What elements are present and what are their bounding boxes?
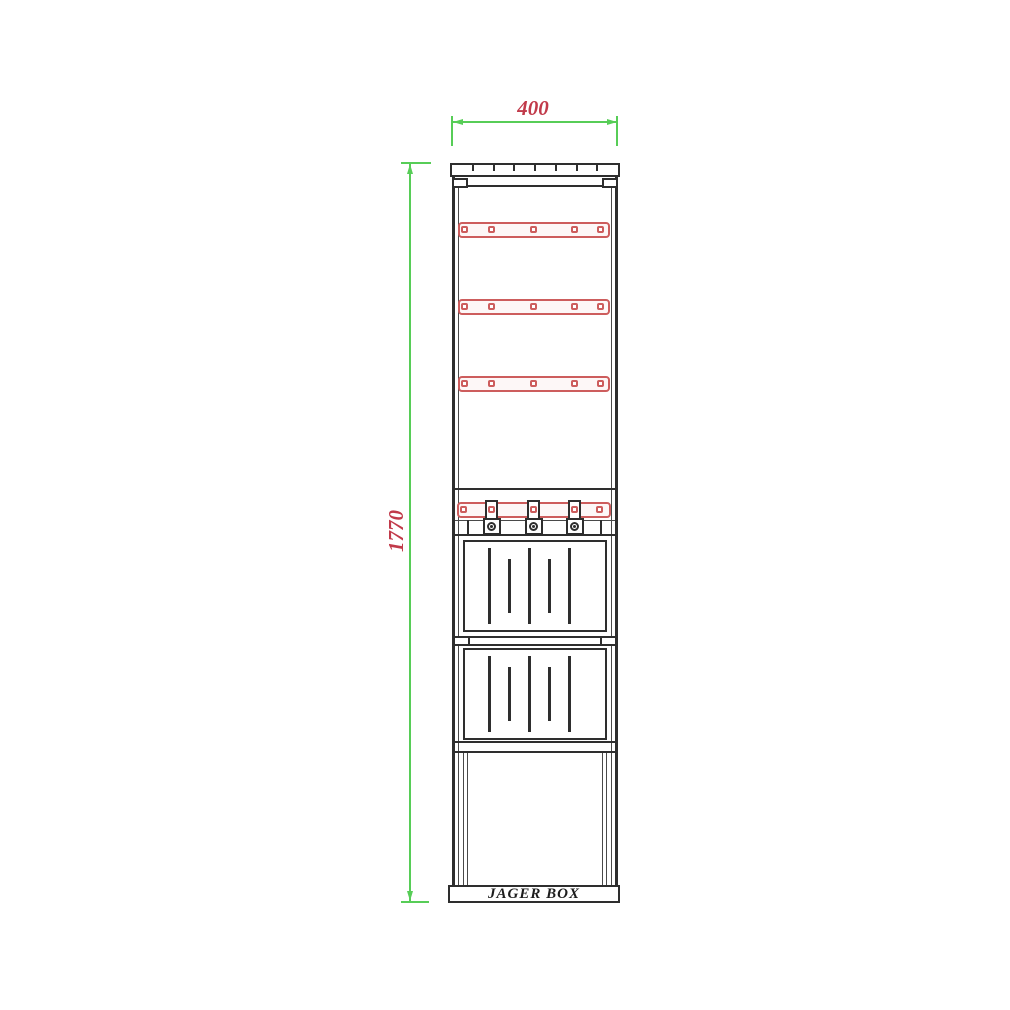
brand-plate: JAGER BOX [448,885,620,903]
base-band-top-line [452,741,618,743]
vent-slat [528,548,531,624]
base-band-bottom-line [452,751,618,753]
mounting-rail [458,299,610,315]
clamp-bolt-center [532,525,535,528]
panel-divider-bottom-line [452,644,618,646]
vent-panel [463,540,607,632]
rim-tab [555,165,557,171]
mounting-rail [458,222,610,238]
vent-slat [568,548,571,624]
clamp-band-divider-right [600,520,602,535]
rail-hole [571,226,578,233]
rail-hole [597,380,604,387]
panel-divider-top-line [470,636,600,638]
vent-slat [568,656,571,732]
height-dim-line [409,163,411,903]
vent-slat [528,656,531,732]
height-dim-arrow-top [407,164,413,174]
rail-hole [530,226,537,233]
base-inner-line-right-b [606,753,607,885]
rail-hole [597,226,604,233]
clamp-bolt-icon [529,522,538,531]
height-dim-tick-bottom [401,901,429,903]
rail-hole [530,380,537,387]
rail-hole [461,226,468,233]
rail-hole [597,303,604,310]
cabinet-right-wall [615,176,618,887]
height-dim-label: 1770 [385,501,407,561]
height-dim-arrow-bottom [407,891,413,901]
rail-hole [460,506,467,513]
clamp-band-top-line [455,520,615,521]
clamp-bolt-icon [570,522,579,531]
rail-hole [461,303,468,310]
clamp-bolt-center [490,525,493,528]
rim-tab [596,165,598,171]
vent-slat [548,559,551,613]
vent-slat [508,667,511,721]
rail-hole [488,226,495,233]
top-rim [450,163,620,177]
door-bottom-edge [455,488,615,490]
cabinet-left-inner-line [458,188,459,886]
clamp-bolt-icon [487,522,496,531]
width-dim-label: 400 [503,97,563,119]
top-clip-left [452,178,468,188]
width-dim-arrow-right [607,119,617,125]
rail-hole [571,380,578,387]
rail-hole [488,380,495,387]
rail-hole [487,506,494,513]
base-inner-line-right-a [602,753,603,885]
vent-slat [548,667,551,721]
vent-panel [463,648,607,740]
rail-hole [570,506,577,513]
vent-slat [488,656,491,732]
cabinet-left-wall [452,176,455,887]
width-dim-arrow-left [453,119,463,125]
vent-slat [508,559,511,613]
base-inner-line-left-a [463,753,464,885]
rail-hole [461,380,468,387]
rail-hole [529,506,536,513]
door-top-edge [468,185,602,187]
rail-hole [488,303,495,310]
base-inner-line-left-b [467,753,468,885]
vent-slat [488,548,491,624]
rim-tab [472,165,474,171]
rail-hole [530,303,537,310]
rail-hole [571,303,578,310]
mounting-rail [457,502,611,518]
clamp-bolt-center [573,525,576,528]
rim-tab [576,165,578,171]
technical-drawing-canvas: JAGER BOX 400 1770 [0,0,1010,1010]
width-dim-line [452,121,618,123]
clamp-band-bottom-line [452,534,618,536]
cabinet-right-inner-line [611,188,612,886]
rim-tab [493,165,495,171]
top-clip-right [602,178,618,188]
rim-tab [513,165,515,171]
mounting-rail [458,376,610,392]
height-dim-tick-top [401,162,431,164]
rim-tab [534,165,536,171]
rail-hole [596,506,603,513]
brand-label: JAGER BOX [488,886,580,903]
clamp-band-divider-left [467,520,469,535]
